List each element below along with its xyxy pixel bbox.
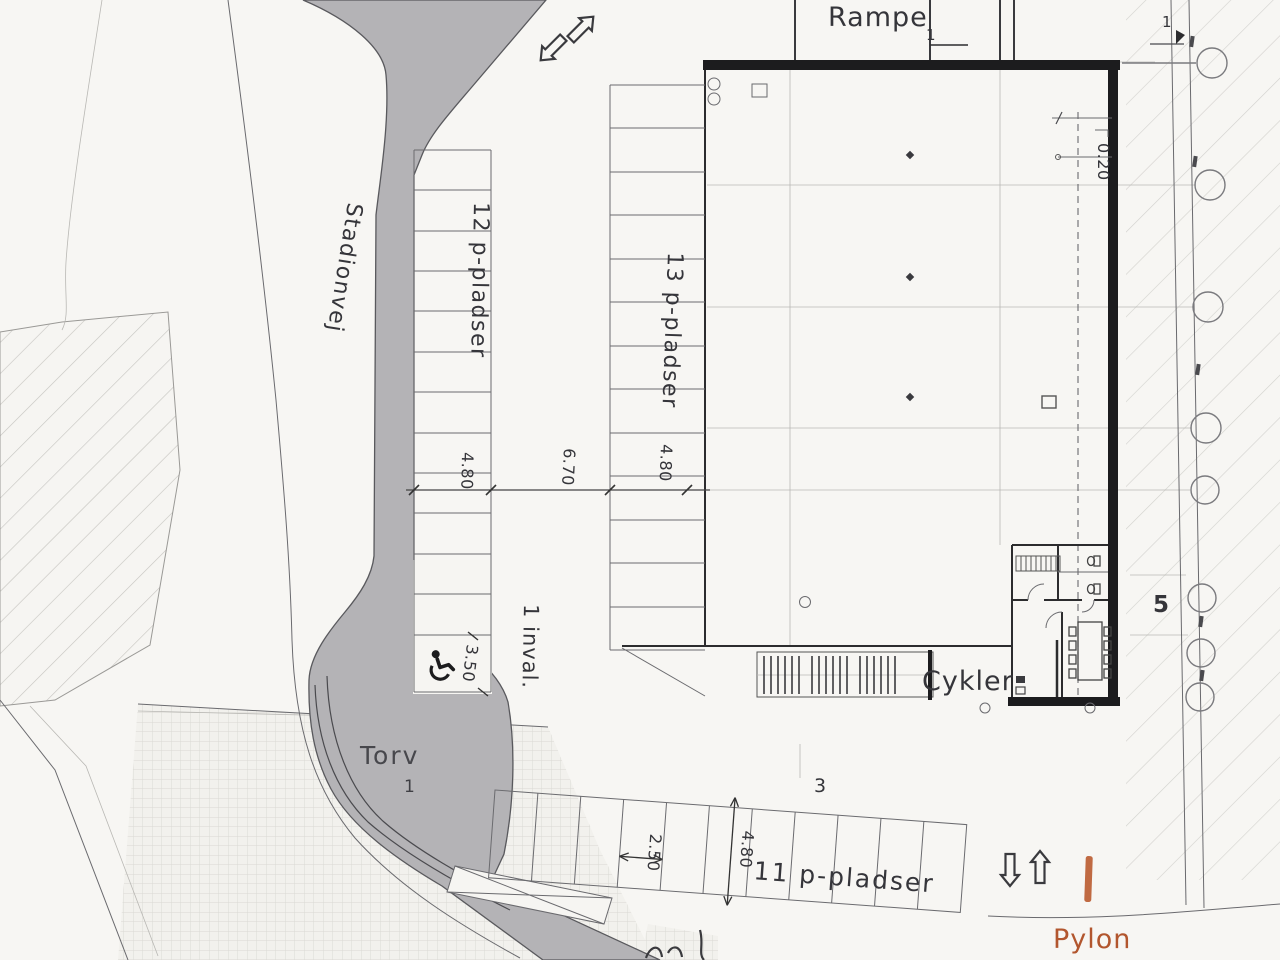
bikes-label: Cykler	[922, 666, 1014, 697]
wall-north	[703, 60, 1120, 70]
corner-marker-label: 1	[1162, 13, 1172, 31]
dim-aisle-width: 6.70	[558, 448, 579, 487]
plaza-label: Torv	[359, 741, 419, 770]
ramp-label: Rampe	[828, 2, 928, 33]
site-plan-drawing: 2.50 4.80 11 p-pladser	[0, 0, 1280, 960]
hatched-margin-right	[1126, 0, 1280, 880]
plaza-number: 1	[404, 777, 415, 797]
row-west-label: 12 p-pladser	[465, 202, 493, 359]
dim-stall-depth-west: 4.80	[457, 452, 477, 490]
svg-text:1: 1	[926, 26, 936, 44]
disabled-stall-label: 1 inval.	[518, 604, 543, 689]
dim-wall-offset: 0.20	[1094, 143, 1113, 181]
dim-stall-depth-mid: 4.80	[656, 444, 676, 482]
pylon-label: Pylon	[1053, 924, 1131, 955]
dim-stall-width-south: 2.50	[643, 833, 665, 872]
site-plan-sheet: 2.50 4.80 11 p-pladser	[0, 0, 1280, 960]
area-number: 3	[814, 775, 826, 797]
grid-number: 5	[1153, 592, 1169, 618]
